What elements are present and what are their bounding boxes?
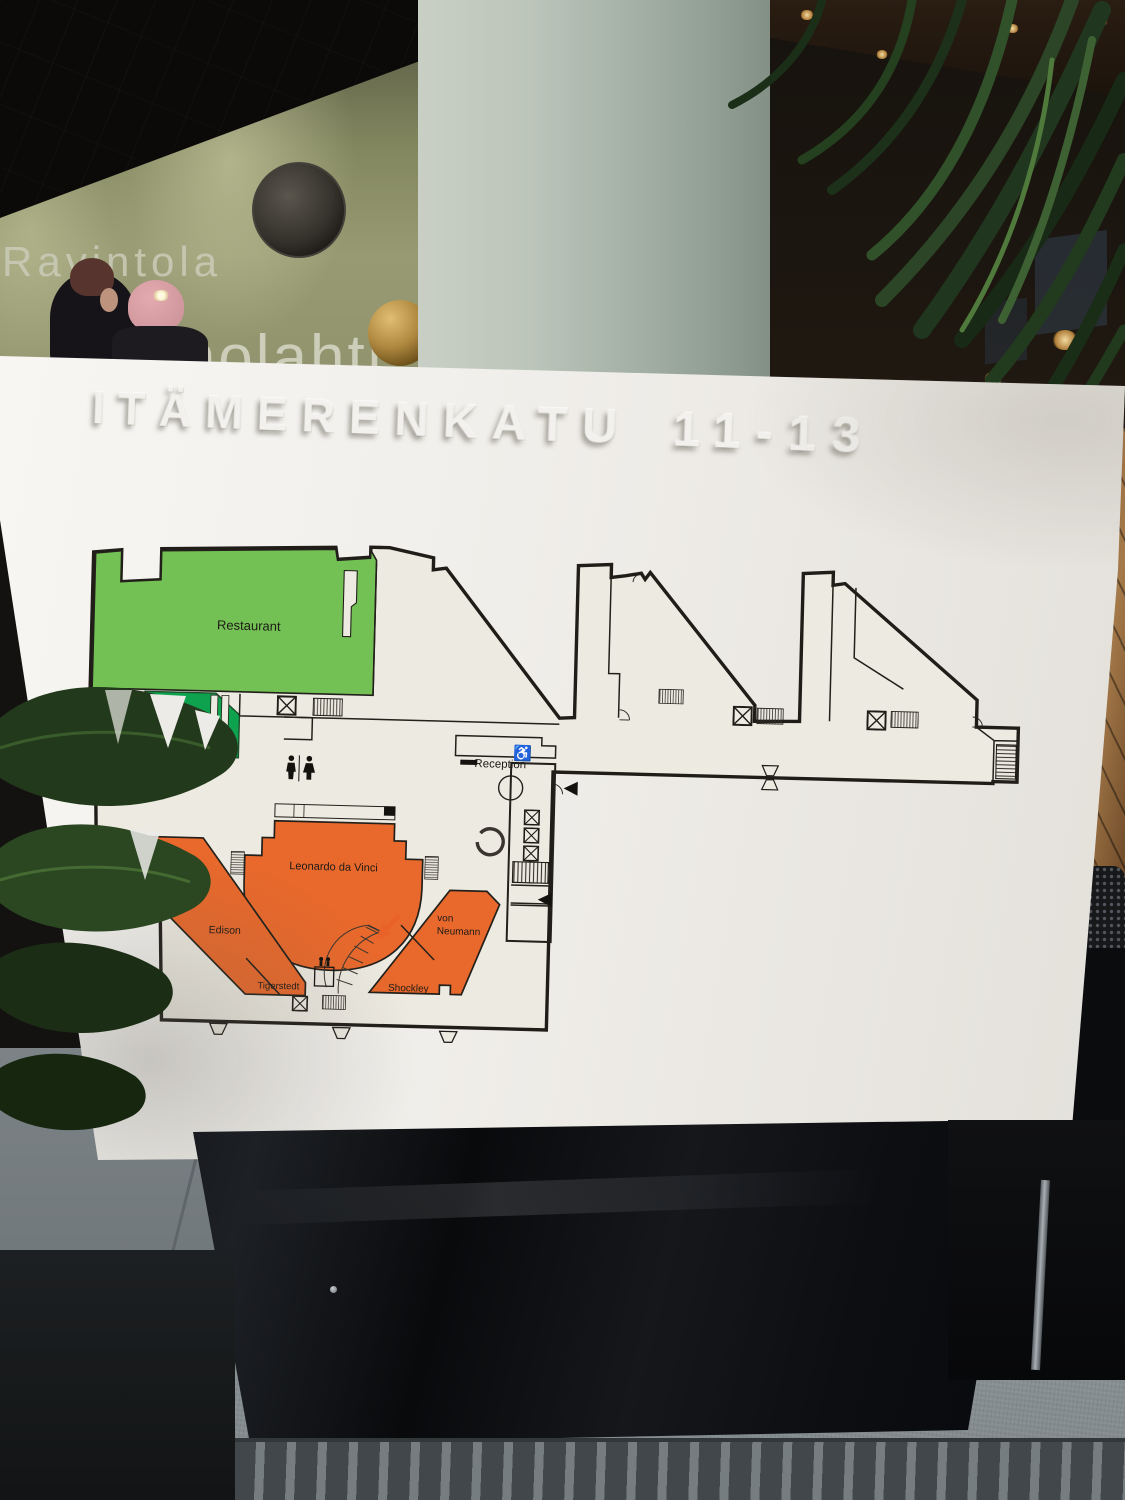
wheelchair-icon: ♿	[513, 744, 532, 762]
monstera-leaf	[0, 824, 211, 931]
stairs-icon	[659, 689, 684, 704]
floor-shadow	[0, 1250, 235, 1500]
sign-title: ITÄMERENKATU 11-13	[91, 381, 1125, 475]
elevator-icon	[524, 810, 539, 825]
monstera-leaf	[0, 687, 238, 806]
stairs-icon	[891, 711, 918, 728]
scene-root: Ravintola Ruoholahti	[0, 0, 1125, 1500]
room-label: von	[437, 913, 453, 924]
elevator-icon	[293, 996, 308, 1011]
room-label: Leonardo da Vinci	[289, 860, 378, 874]
stairs-icon	[757, 708, 783, 724]
elevator-icon	[524, 846, 539, 861]
elevator-icon	[277, 696, 295, 714]
stage-strip	[275, 804, 395, 820]
room-label: Shockley	[388, 983, 429, 995]
person-face	[100, 288, 118, 312]
stage-mark	[384, 807, 395, 816]
monstera-plant	[0, 598, 280, 1158]
stairs-icon	[322, 995, 346, 1009]
double-door-icon	[762, 780, 778, 790]
person-pink-beanie	[128, 280, 184, 332]
exit-dash	[460, 760, 477, 765]
stairs-icon	[425, 856, 439, 879]
double-door-icon	[332, 1027, 350, 1038]
stairs-icon	[512, 862, 548, 884]
spotlight-icon	[152, 290, 170, 301]
elevator-icon	[867, 711, 885, 729]
room-label: Neumann	[437, 926, 481, 938]
entrance-triangle-icon	[563, 781, 577, 795]
round-mirror	[252, 162, 346, 258]
potted-plant	[672, 0, 1125, 440]
elevator-icon	[524, 828, 539, 843]
screw-icon	[330, 1286, 337, 1293]
double-door-icon	[439, 1031, 457, 1042]
floor-grate	[225, 1438, 1125, 1500]
elevator-icon	[733, 707, 751, 725]
restroom-divider	[299, 755, 300, 781]
stairs-icon	[996, 745, 1017, 779]
monstera-leaf	[0, 943, 173, 1131]
stairs-icon	[313, 698, 342, 716]
